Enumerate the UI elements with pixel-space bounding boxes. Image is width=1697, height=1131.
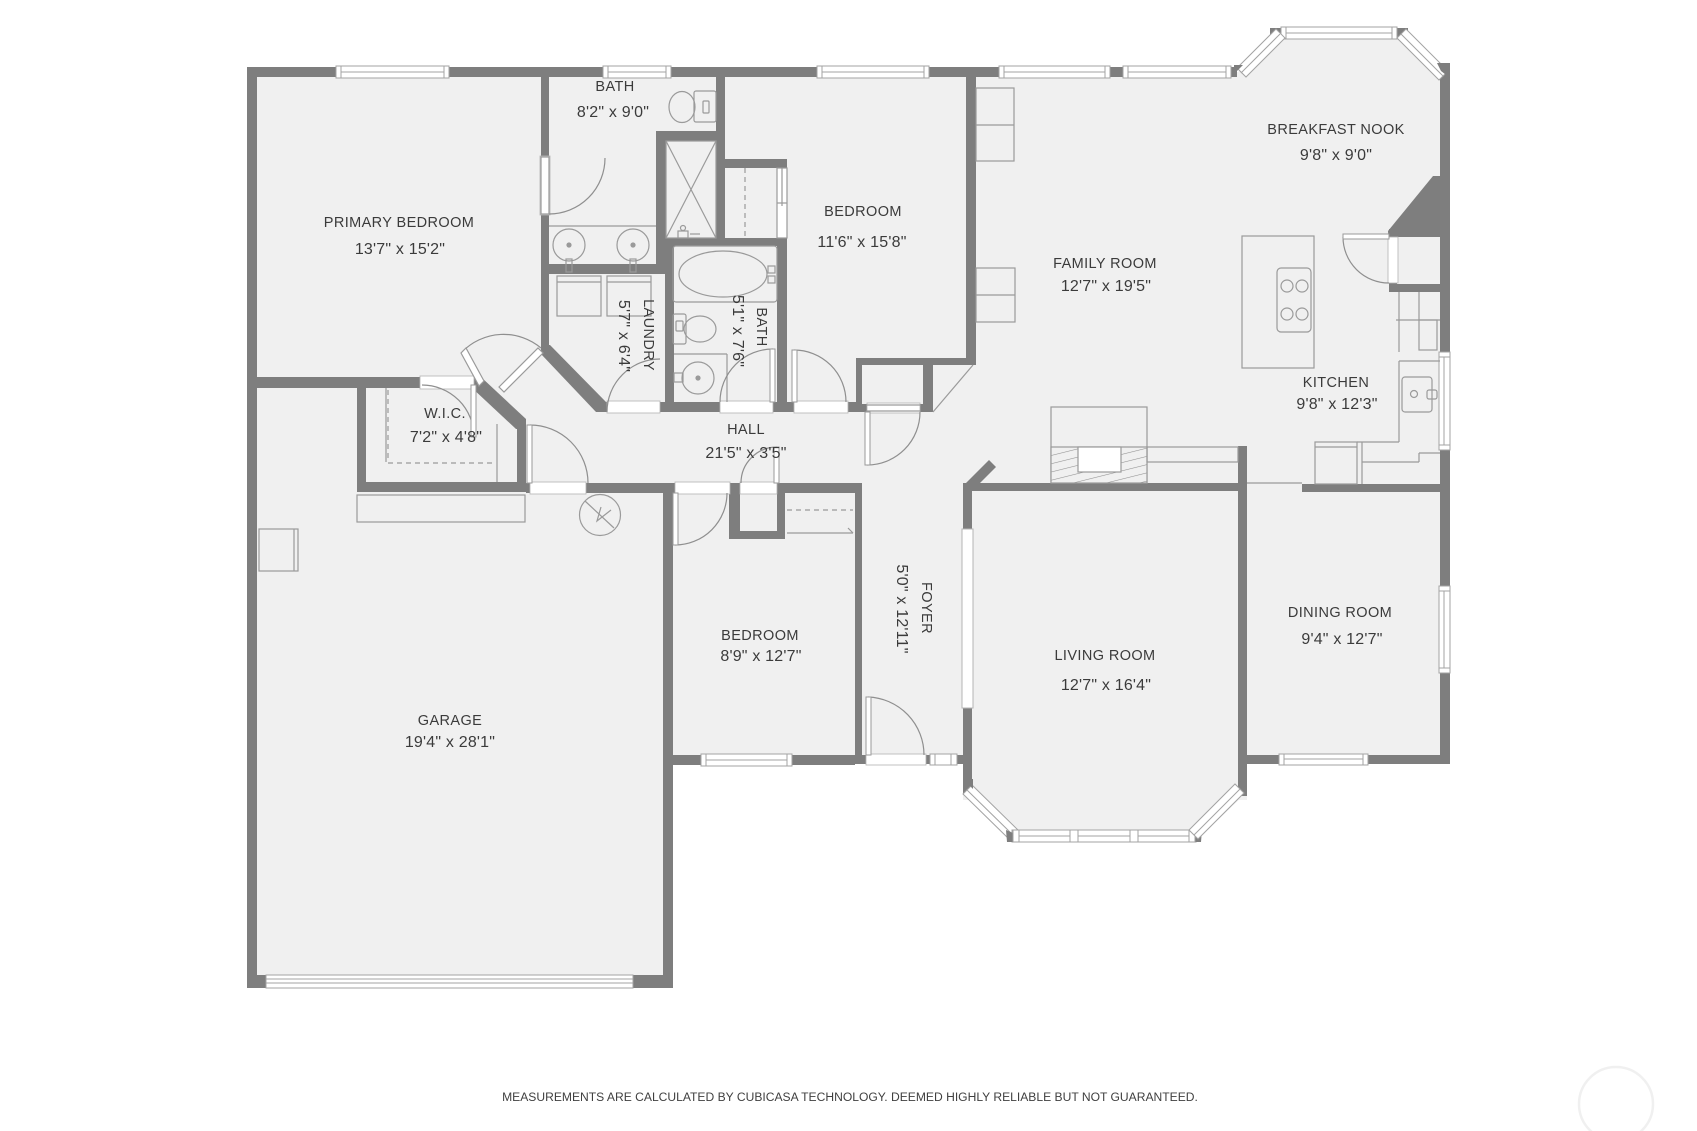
svg-text:9'8" x 9'0": 9'8" x 9'0" [1300,147,1372,164]
svg-text:LIVING ROOM: LIVING ROOM [1054,648,1155,664]
svg-text:BEDROOM: BEDROOM [824,204,902,220]
svg-text:5'7" x 6'4": 5'7" x 6'4" [615,300,632,372]
svg-text:BEDROOM: BEDROOM [721,628,799,644]
svg-text:9'8" x 12'3": 9'8" x 12'3" [1296,396,1377,413]
svg-text:FOYER: FOYER [918,582,934,634]
svg-text:BATH: BATH [753,307,769,346]
svg-text:5'1" x 7'6": 5'1" x 7'6" [729,295,746,367]
svg-text:DINING ROOM: DINING ROOM [1288,605,1392,621]
svg-text:9'4" x 12'7": 9'4" x 12'7" [1301,631,1382,648]
svg-text:13'7" x 15'2": 13'7" x 15'2" [355,241,445,258]
svg-text:19'4" x 28'1": 19'4" x 28'1" [405,734,495,751]
svg-text:GARAGE: GARAGE [418,713,482,729]
svg-text:7'2" x 4'8": 7'2" x 4'8" [410,429,482,446]
svg-text:8'2" x 9'0": 8'2" x 9'0" [577,104,649,121]
svg-text:LAUNDRY: LAUNDRY [640,299,656,371]
svg-text:BATH: BATH [595,79,634,95]
svg-text:FAMILY ROOM: FAMILY ROOM [1053,256,1157,272]
svg-text:HALL: HALL [727,422,765,438]
svg-text:W.I.C.: W.I.C. [424,406,466,422]
svg-text:21'5" x 3'5": 21'5" x 3'5" [705,445,786,462]
svg-text:BREAKFAST NOOK: BREAKFAST NOOK [1267,122,1404,138]
svg-text:12'7" x 16'4": 12'7" x 16'4" [1061,677,1151,694]
svg-text:KITCHEN: KITCHEN [1303,375,1369,391]
svg-text:PRIMARY BEDROOM: PRIMARY BEDROOM [324,215,475,231]
svg-text:12'7" x 19'5": 12'7" x 19'5" [1061,278,1151,295]
svg-text:5'0" x 12'11": 5'0" x 12'11" [893,564,910,653]
svg-text:MEASUREMENTS ARE CALCULATED BY: MEASUREMENTS ARE CALCULATED BY CUBICASA … [502,1090,1198,1104]
svg-text:11'6" x 15'8": 11'6" x 15'8" [817,234,906,251]
svg-text:8'9" x 12'7": 8'9" x 12'7" [720,648,801,665]
